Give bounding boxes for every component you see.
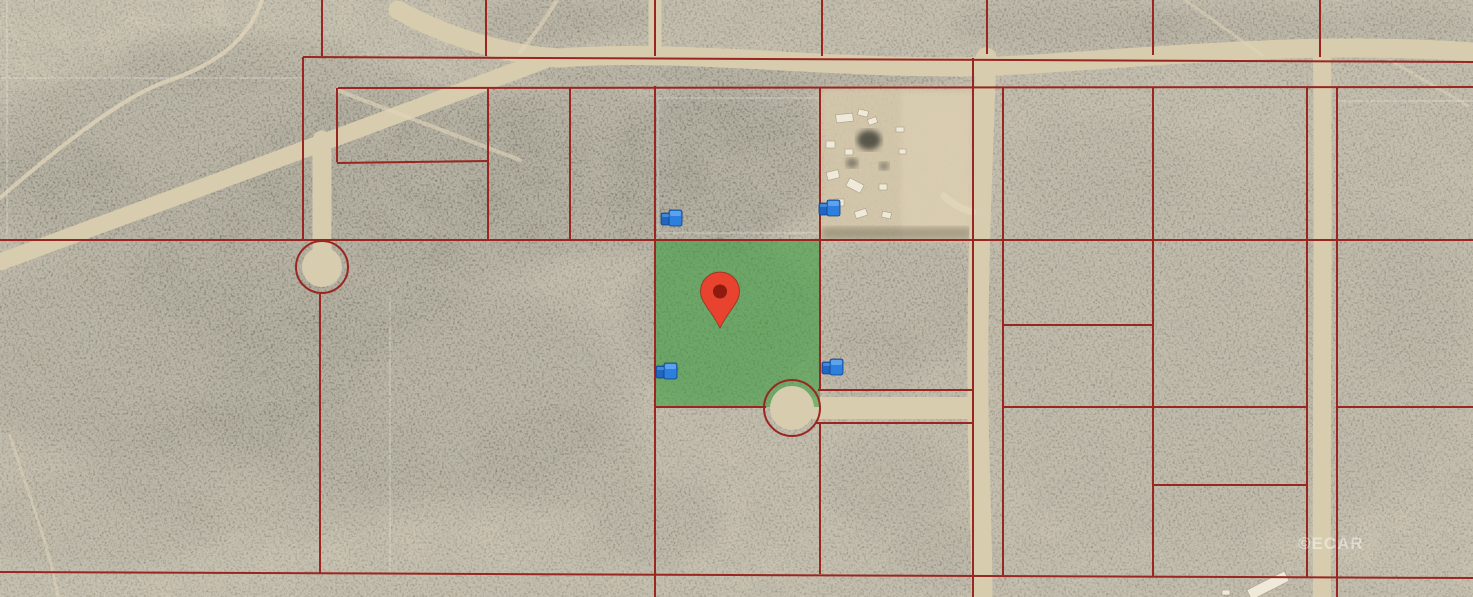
cul-de-sac-pavement: [302, 247, 342, 287]
blue-marker-highlight: [820, 204, 827, 207]
blue-marker-highlight: [670, 211, 681, 216]
building: [826, 141, 835, 148]
cleared-lot-patch: [822, 227, 971, 239]
debris-blob: [846, 158, 858, 168]
building: [879, 184, 887, 190]
building: [896, 127, 904, 132]
blue-marker-highlight: [828, 201, 839, 206]
cleared-lot-patch: [901, 92, 972, 238]
cul-de-sac-pavement: [770, 386, 814, 430]
satellite-map-viewport[interactable]: ©ECAR: [0, 0, 1473, 597]
blue-marker-highlight: [823, 363, 830, 366]
satellite-map-canvas[interactable]: [0, 0, 1473, 597]
building: [1222, 590, 1230, 595]
blue-marker-highlight: [657, 367, 664, 370]
debris-blob: [879, 162, 889, 170]
map-pin-hole: [713, 285, 727, 299]
highlighted-parcel[interactable]: [656, 241, 820, 407]
debris-blob: [857, 130, 881, 150]
blue-marker-highlight: [831, 360, 842, 365]
building: [845, 149, 853, 155]
highlight-layer: [656, 241, 820, 407]
dirt-road: [978, 58, 986, 597]
dirt-road: [1322, 57, 1323, 597]
parcel-boundary-line: [338, 87, 1473, 88]
building: [836, 113, 854, 123]
blue-marker-highlight: [665, 364, 676, 369]
building: [899, 149, 906, 154]
blue-marker-highlight: [662, 214, 669, 217]
